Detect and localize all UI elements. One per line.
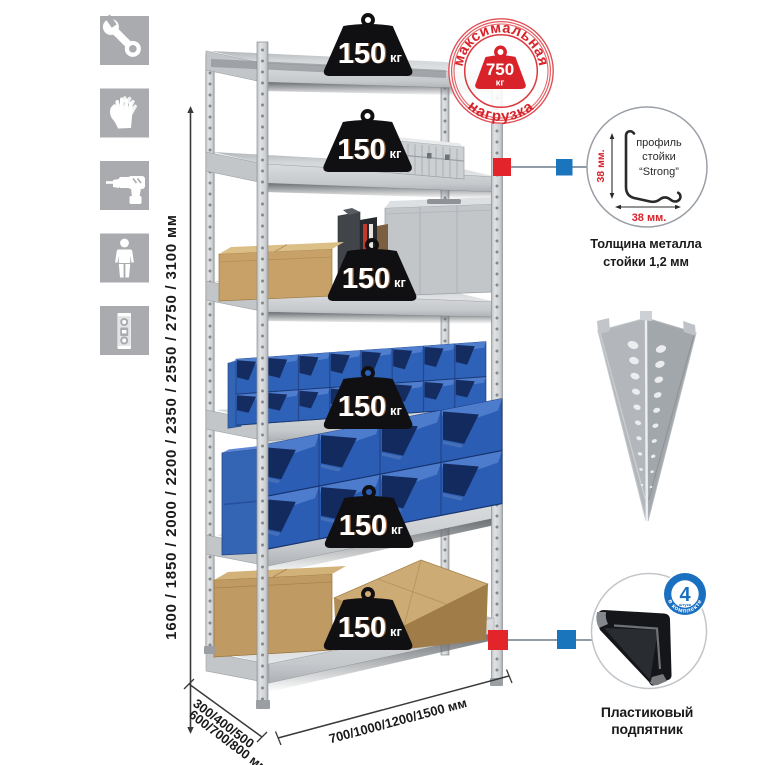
- svg-text:стойки 1,2 мм: стойки 1,2 мм: [603, 254, 689, 269]
- svg-text:150: 150: [337, 134, 385, 166]
- svg-text:38 мм.: 38 мм.: [595, 149, 607, 182]
- svg-text:1600 / 1850 / 2000 / 2200 / 23: 1600 / 1850 / 2000 / 2200 / 2350 / 2550 …: [163, 214, 180, 640]
- svg-text:профиль: профиль: [636, 137, 682, 149]
- svg-text:подпятник: подпятник: [611, 721, 684, 737]
- svg-text:150: 150: [339, 510, 387, 542]
- svg-text:150: 150: [342, 263, 390, 295]
- svg-text:кг: кг: [390, 146, 403, 161]
- svg-text:38 мм.: 38 мм.: [632, 212, 667, 224]
- svg-text:150: 150: [338, 391, 386, 423]
- svg-text:стойки: стойки: [642, 151, 676, 163]
- svg-text:150: 150: [338, 612, 386, 644]
- svg-text:кг: кг: [390, 624, 403, 639]
- svg-text:“Strong”: “Strong”: [639, 166, 679, 178]
- svg-text:кг: кг: [391, 522, 404, 537]
- svg-text:150: 150: [338, 38, 386, 70]
- svg-text:750: 750: [486, 60, 514, 79]
- svg-text:кг: кг: [394, 275, 407, 290]
- svg-text:Толщина металла: Толщина металла: [590, 236, 702, 251]
- svg-text:штуки: штуки: [679, 602, 692, 607]
- svg-text:кг: кг: [390, 403, 403, 418]
- svg-text:кг: кг: [496, 78, 505, 89]
- svg-text:кг: кг: [390, 50, 403, 65]
- svg-text:Пластиковый: Пластиковый: [601, 704, 693, 720]
